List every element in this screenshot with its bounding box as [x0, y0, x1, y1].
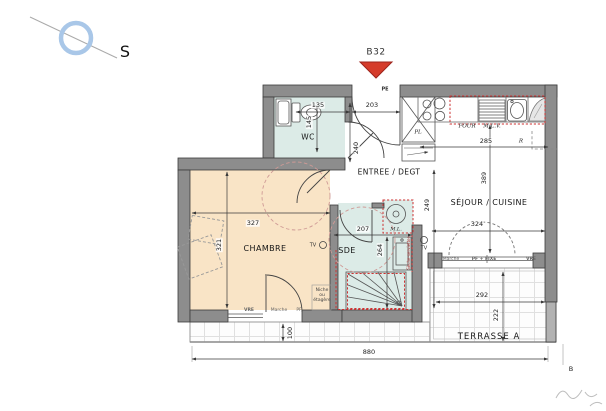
dim-strip-depth: 100	[287, 326, 294, 340]
vre-sejour-label: VRE	[526, 258, 536, 263]
dim-terrasse-width: 292	[475, 292, 489, 299]
niche-label: Niche ou étagère	[313, 288, 330, 304]
room-sde: SDE	[338, 247, 356, 255]
kitchen-corner-unit	[529, 98, 545, 121]
dim-entree-width: 203	[365, 102, 379, 109]
unit-label: B32	[366, 49, 385, 58]
compass-label: S	[120, 44, 130, 60]
dim-kitchen-width: 285	[479, 138, 493, 145]
towel-rail-label: Sèche-serviettes	[407, 236, 411, 269]
dim-sde-width: 207	[356, 226, 370, 233]
entrance-arrow-icon	[360, 62, 392, 78]
dim-terrasse-depth: 222	[493, 308, 500, 322]
vre-chambre-label: VRE	[244, 309, 254, 314]
dim-entree-depth: 240	[353, 141, 360, 155]
entry-door-label: PE	[381, 88, 388, 93]
dim-facade-width: 880	[362, 349, 376, 356]
dim-chambre-depth: 321	[216, 238, 223, 252]
tv-label-sejour: TV	[421, 247, 427, 252]
dim-wc-depth: 145	[306, 115, 313, 129]
washing-machine-label: M.L.	[390, 228, 402, 233]
marche-chambre-label: Marche	[271, 309, 288, 314]
pf-chambre-label: PF	[296, 309, 301, 314]
oven-label: FOUR	[458, 124, 475, 130]
room-entree: ENTREE / DEGT	[358, 168, 421, 176]
compass-icon	[30, 17, 117, 58]
marche-sejour-label: Marche	[443, 258, 460, 263]
floorplan-canvas: S B32 PE 135 203 145 WC PL FOUR M.L.V. 2…	[0, 0, 606, 411]
dishwasher-label: M.L.V.	[483, 124, 501, 130]
dim-sde-depth: 264	[377, 243, 384, 257]
washbasin-icon	[276, 99, 291, 126]
dim-wc-width: 135	[311, 102, 325, 109]
fridge-label: R	[519, 139, 523, 145]
section-mark-label: B	[568, 366, 574, 373]
dishwasher-icon	[479, 100, 505, 121]
room-wc: WC	[301, 133, 314, 141]
pf-fixe-label: PF + FIXE	[472, 258, 497, 263]
dim-sejour-depth: 389	[481, 171, 488, 185]
kitchen-sink-icon	[508, 100, 527, 122]
handwritten-mark	[556, 390, 602, 406]
room-sejour: SÉJOUR / CUISINE	[451, 199, 528, 207]
dim-chambre-width: 327	[246, 220, 260, 227]
dim-hall-depth: 249	[424, 198, 431, 212]
closet-label: PL	[414, 130, 421, 136]
room-chambre: CHAMBRE	[244, 245, 287, 253]
tv-label-chambre: TV	[310, 244, 316, 249]
dim-sejour-width: 324	[470, 221, 484, 228]
room-terrasse: TERRASSE A	[458, 333, 521, 342]
